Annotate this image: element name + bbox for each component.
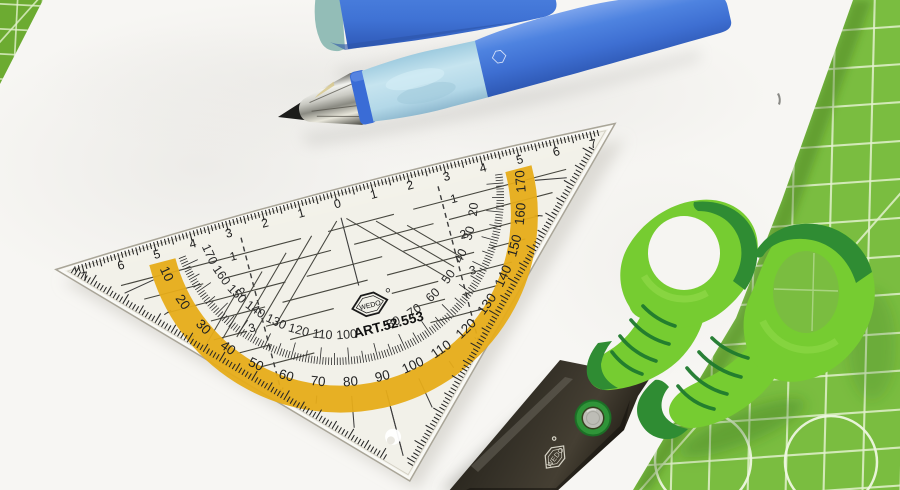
svg-text:20: 20 (466, 202, 481, 217)
svg-text:110: 110 (312, 327, 333, 343)
svg-text:70: 70 (310, 373, 326, 389)
svg-text:80: 80 (342, 373, 358, 389)
svg-text:170: 170 (512, 170, 529, 193)
svg-text:160: 160 (512, 202, 529, 226)
